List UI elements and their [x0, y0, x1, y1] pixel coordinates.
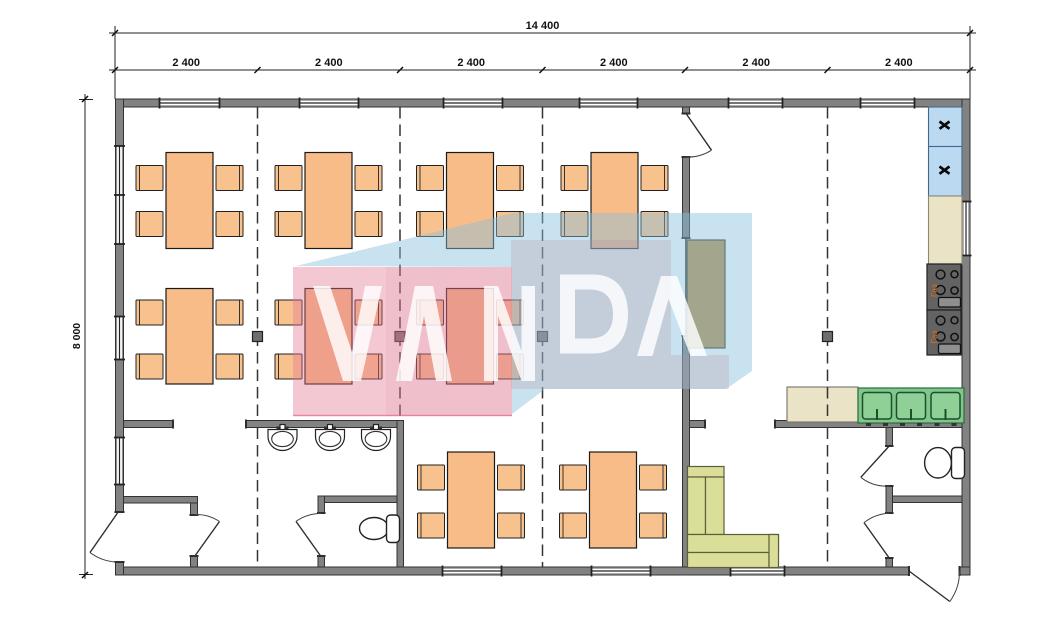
- svg-text:14 400: 14 400: [526, 20, 560, 32]
- svg-text:Газ: Газ: [930, 331, 939, 344]
- svg-text:8 000: 8 000: [71, 323, 83, 349]
- svg-text:2 400: 2 400: [600, 57, 628, 69]
- svg-text:2 400: 2 400: [742, 57, 770, 69]
- svg-text:2 400: 2 400: [172, 57, 200, 69]
- svg-text:2 400: 2 400: [885, 57, 913, 69]
- svg-text:Газ: Газ: [930, 284, 939, 297]
- svg-text:2 400: 2 400: [315, 57, 343, 69]
- svg-text:2 400: 2 400: [457, 57, 485, 69]
